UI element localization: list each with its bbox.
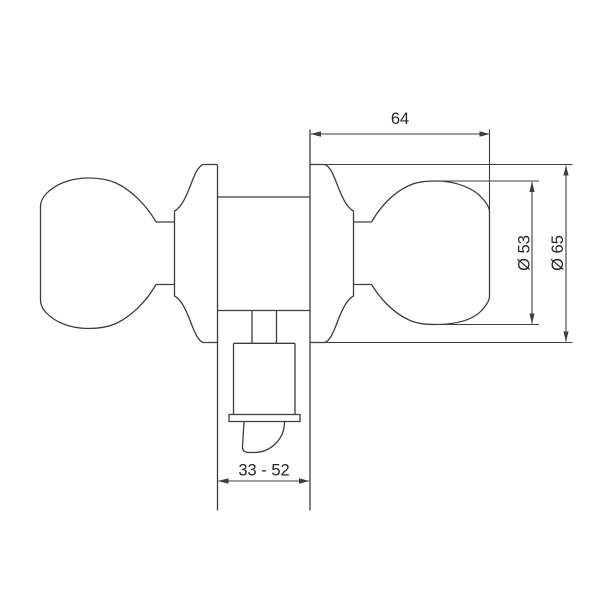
arrow-left-icon [218, 478, 229, 483]
left-knob-ball-outline [41, 178, 157, 329]
overall-width-label: 64 [391, 110, 409, 128]
technical-drawing-canvas: 64 Ø 53 Ø 65 33 - 52 [0, 0, 600, 600]
left-knob-neck [156, 222, 175, 285]
arrow-down-icon [529, 314, 534, 324]
arrow-down-icon [563, 332, 568, 342]
spindle-shaft [252, 311, 277, 344]
arrow-up-icon [563, 165, 568, 175]
right-knob-neck [354, 222, 372, 285]
rose-diameter-label: Ø 65 [549, 235, 567, 271]
dimension-labels: 64 Ø 53 Ø 65 33 - 52 [238, 110, 567, 480]
arrow-left-icon [310, 131, 321, 136]
left-rose-profile [175, 165, 218, 343]
right-rose-profile [310, 165, 354, 343]
knob-diameter-label: Ø 53 [516, 235, 534, 271]
arrow-right-icon [299, 478, 309, 483]
knob-lockset-geometry [41, 130, 490, 511]
rose-diameter-extension-lines [325, 165, 573, 343]
lock-body-cylinder [218, 197, 311, 311]
arrow-right-icon [480, 131, 490, 136]
latch-case [234, 343, 296, 414]
backset-range-label: 33 - 52 [238, 462, 289, 480]
dimension-lines [219, 130, 573, 482]
arrow-up-icon [529, 182, 534, 192]
door-knob-dimension-drawing: 64 Ø 53 Ø 65 33 - 52 [0, 0, 600, 600]
latch-bolt [243, 422, 285, 453]
dimension-arrowheads [218, 131, 569, 483]
right-knob-ball-outline [372, 181, 490, 325]
latch-faceplate [229, 415, 300, 422]
